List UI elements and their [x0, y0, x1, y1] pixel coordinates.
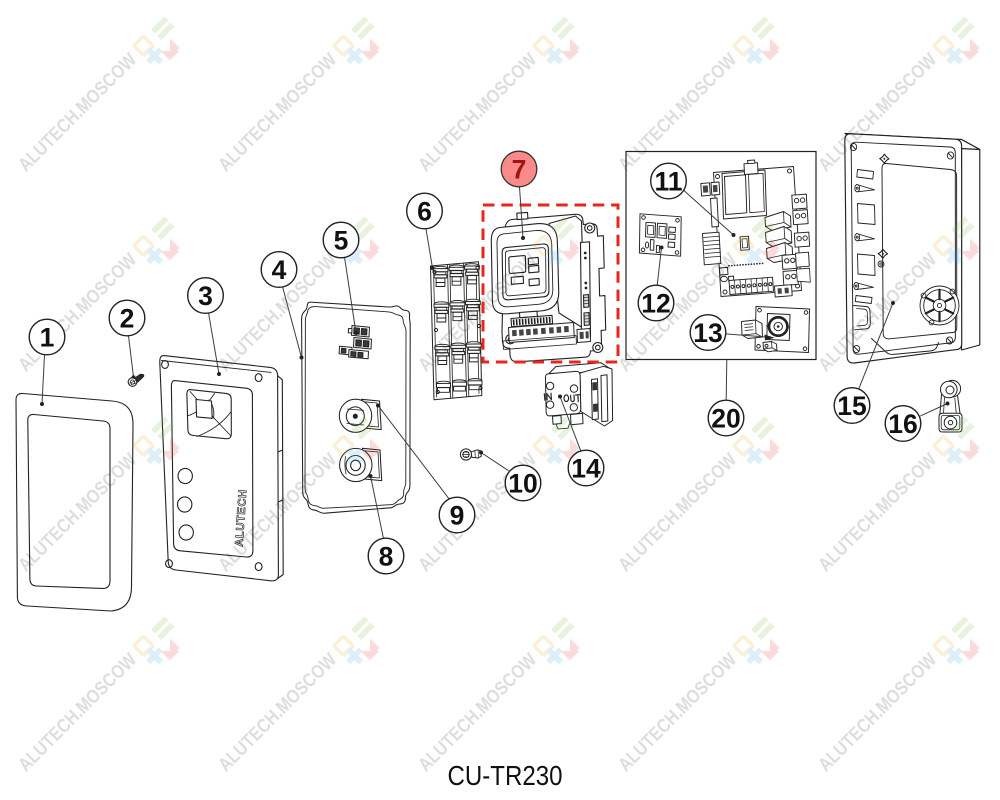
svg-text:11: 11 [654, 166, 682, 196]
svg-text:1: 1 [40, 322, 55, 352]
svg-text:12: 12 [641, 288, 670, 318]
svg-text:10: 10 [508, 468, 537, 498]
svg-text:14: 14 [571, 453, 601, 483]
svg-text:16: 16 [888, 409, 917, 439]
svg-text:8: 8 [379, 541, 394, 571]
svg-text:9: 9 [450, 500, 465, 530]
svg-text:13: 13 [693, 318, 722, 348]
svg-text:6: 6 [417, 196, 432, 226]
svg-text:4: 4 [272, 255, 287, 285]
svg-text:20: 20 [711, 403, 740, 433]
svg-text:2: 2 [120, 303, 135, 333]
svg-text:CU-TR230: CU-TR230 [448, 760, 563, 791]
svg-text:5: 5 [334, 225, 349, 255]
svg-text:15: 15 [837, 391, 866, 421]
svg-text:7: 7 [512, 154, 527, 184]
svg-text:3: 3 [198, 281, 213, 311]
